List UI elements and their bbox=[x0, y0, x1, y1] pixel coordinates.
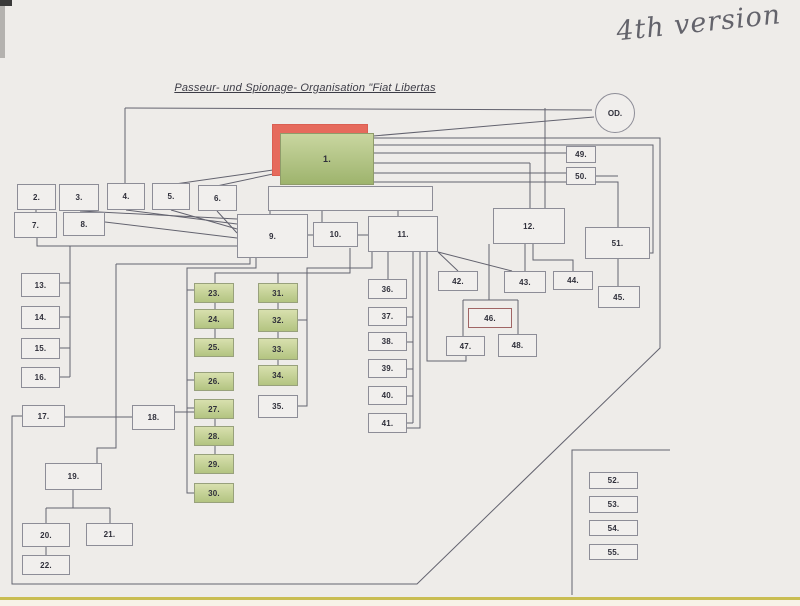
org-box-17: 17. bbox=[22, 405, 65, 427]
org-box-52: 52. bbox=[589, 472, 638, 489]
org-box-24: 24. bbox=[194, 309, 234, 329]
org-box-19: 19. bbox=[45, 463, 102, 490]
org-box-38: 38. bbox=[368, 332, 407, 351]
org-box-9: 9. bbox=[237, 214, 308, 258]
org-box-43: 43. bbox=[504, 271, 546, 293]
org-box-28: 28. bbox=[194, 426, 234, 446]
org-box-16: 16. bbox=[21, 367, 60, 388]
org-box-2: 2. bbox=[17, 184, 56, 210]
org-box-11: 11. bbox=[368, 216, 438, 252]
org-box-29: 29. bbox=[194, 454, 234, 474]
org-box-4: 4. bbox=[107, 183, 145, 210]
org-box-20: 20. bbox=[22, 523, 70, 547]
org-box-14: 14. bbox=[21, 306, 60, 329]
org-box-44: 44. bbox=[553, 271, 593, 290]
org-box-51: 51. bbox=[585, 227, 650, 259]
org-box-30: 30. bbox=[194, 483, 234, 503]
scan-artifact-bottom-strip bbox=[0, 600, 800, 606]
org-box-31: 31. bbox=[258, 283, 298, 303]
org-box-54: 54. bbox=[589, 520, 638, 536]
org-box-26: 26. bbox=[194, 372, 234, 391]
od-circle-node: OD. bbox=[595, 93, 635, 133]
org-box-46: 46. bbox=[468, 308, 512, 328]
org-box-49: 49. bbox=[566, 146, 596, 163]
org-box-50: 50. bbox=[566, 167, 596, 185]
org-box-13: 13. bbox=[21, 273, 60, 297]
org-box-22: 22. bbox=[22, 555, 70, 575]
org-box-34: 34. bbox=[258, 365, 298, 386]
org-box-untitled-wide bbox=[268, 186, 433, 211]
org-box-36: 36. bbox=[368, 279, 407, 299]
org-box-15: 15. bbox=[21, 338, 60, 359]
org-box-7: 7. bbox=[14, 212, 57, 238]
org-box-3: 3. bbox=[59, 184, 99, 211]
org-box-18: 18. bbox=[132, 405, 175, 430]
org-box-41: 41. bbox=[368, 413, 407, 433]
scan-artifact-edge-smudge bbox=[0, 6, 5, 58]
org-box-12: 12. bbox=[493, 208, 565, 244]
org-box-45: 45. bbox=[598, 286, 640, 308]
org-box-37: 37. bbox=[368, 307, 407, 326]
org-box-5: 5. bbox=[152, 183, 190, 210]
org-box-23: 23. bbox=[194, 283, 234, 303]
org-box-1: 1. bbox=[280, 133, 374, 185]
org-box-10: 10. bbox=[313, 222, 358, 247]
chart-title: Passeur- und Spionage- Organisation "Fia… bbox=[160, 82, 450, 94]
org-box-25: 25. bbox=[194, 338, 234, 357]
org-box-40: 40. bbox=[368, 386, 407, 405]
org-box-8: 8. bbox=[63, 212, 105, 236]
org-box-53: 53. bbox=[589, 496, 638, 513]
org-box-33: 33. bbox=[258, 338, 298, 360]
scanned-org-chart-page: Passeur- und Spionage- Organisation "Fia… bbox=[0, 0, 800, 606]
org-box-35: 35. bbox=[258, 395, 298, 418]
org-box-39: 39. bbox=[368, 359, 407, 378]
org-box-6: 6. bbox=[198, 185, 237, 211]
org-box-32: 32. bbox=[258, 309, 298, 332]
org-box-21: 21. bbox=[86, 523, 133, 546]
org-box-55: 55. bbox=[589, 544, 638, 560]
org-box-42: 42. bbox=[438, 271, 478, 291]
org-box-27: 27. bbox=[194, 399, 234, 419]
org-box-47: 47. bbox=[446, 336, 485, 356]
org-box-48: 48. bbox=[498, 334, 537, 357]
